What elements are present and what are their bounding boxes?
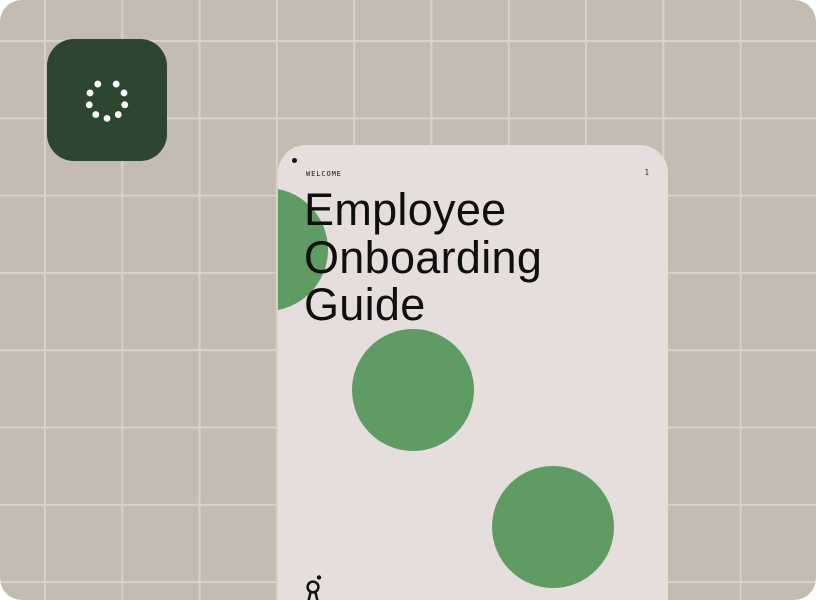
dotted-loader-icon [84, 77, 130, 123]
document-card[interactable]: WELCOME 1 Employee Onboarding Guide [278, 145, 668, 600]
app-logo-tile[interactable] [47, 39, 167, 161]
decorative-circle-middle [352, 329, 474, 451]
person-logo-icon [302, 571, 326, 600]
eyebrow-label: WELCOME [306, 170, 342, 178]
decorative-circle-bottom [492, 466, 614, 588]
canvas-background: WELCOME 1 Employee Onboarding Guide [0, 0, 816, 600]
document-title: Employee Onboarding Guide [304, 186, 542, 329]
bullet-dot [292, 158, 297, 163]
page-number: 1 [644, 169, 649, 177]
